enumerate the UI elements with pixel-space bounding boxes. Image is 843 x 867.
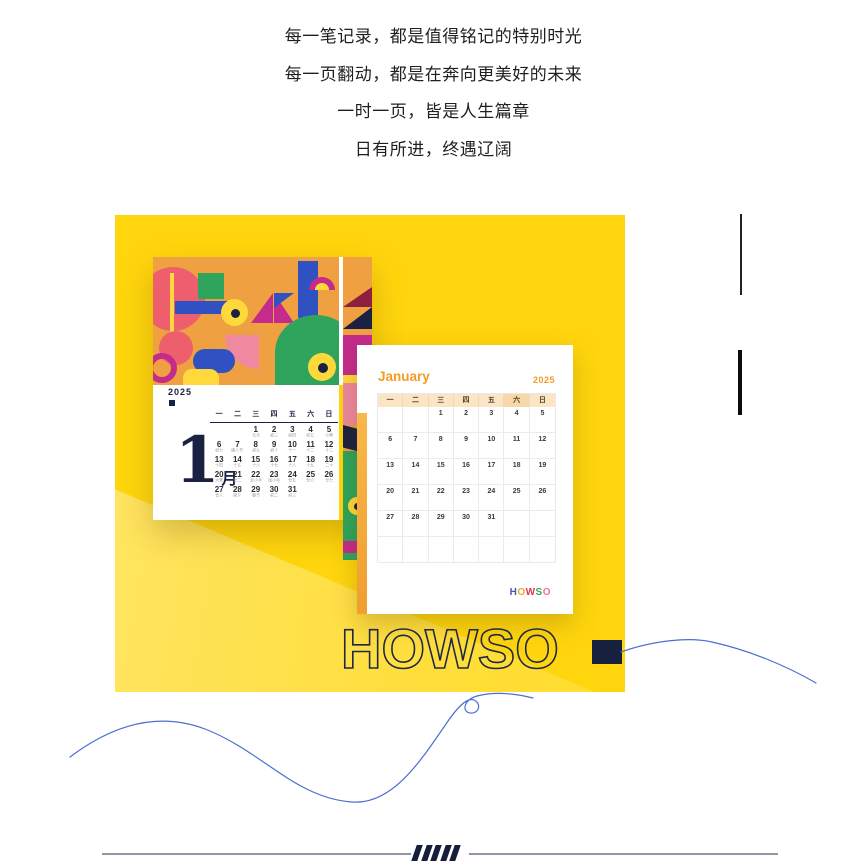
page-calendar-cell: 27 <box>378 511 403 537</box>
page-calendar-cell: 11 <box>504 433 529 459</box>
desk-calendar-cell: 19二十 <box>320 456 338 471</box>
right-vertical-line-thick <box>738 350 742 415</box>
quote-line-2: 每一页翻动，都是在奔向更美好的未来 <box>12 56 843 94</box>
page-calendar-cell <box>504 511 529 537</box>
footer-divider-right <box>469 853 778 855</box>
page-calendar-cell <box>403 407 428 433</box>
page-calendar-cell <box>530 537 555 563</box>
page-weekday-label: 五 <box>479 394 504 407</box>
page-calendar-cell <box>403 537 428 563</box>
desk-calendar-cell: 17十八 <box>283 456 301 471</box>
page-calendar-cell: 5 <box>530 407 555 433</box>
desk-calendar-cell: 27廿八 <box>210 486 228 501</box>
page-calendar-cell: 3 <box>479 407 504 433</box>
page-weekday-label: 三 <box>429 394 454 407</box>
quote-line-3: 一时一页，皆是人生篇章 <box>12 93 843 131</box>
desk-calendar-year: 2025 <box>168 387 192 397</box>
desk-calendar-cell: 8初九 <box>247 441 265 456</box>
page-calendar-cell <box>429 537 454 563</box>
desk-date-grid: 1元旦2初三3初四4初五5小寒6初七7腊八节8初九9初十10十一11十二12十三… <box>210 426 338 501</box>
desk-weekday-label: 五 <box>283 409 301 419</box>
desk-calendar-cell: 31初三 <box>283 486 301 501</box>
desk-calendar-cell: 30初二 <box>265 486 283 501</box>
desk-calendar-cell: 29春节 <box>247 486 265 501</box>
desk-calendar-cell: 18十九 <box>301 456 319 471</box>
desk-calendar-cell: 22北小年 <box>247 471 265 486</box>
page-calendar-cell: 10 <box>479 433 504 459</box>
page-calendar-cell: 15 <box>429 459 454 485</box>
page-weekday-label: 日 <box>530 394 555 407</box>
desk-weekday-label: 四 <box>265 409 283 419</box>
quote-block: 每一笔记录，都是值得铭记的特别时光 每一页翻动，都是在奔向更美好的未来 一时一页… <box>12 18 843 168</box>
page-calendar-cell: 24 <box>479 485 504 511</box>
desk-weekday-label: 一 <box>210 409 228 419</box>
quote-line-4: 日有所进，终遇辽阔 <box>12 131 843 169</box>
page-calendar-cell <box>504 537 529 563</box>
desk-calendar-cell: 11十二 <box>301 441 319 456</box>
desk-calendar-artwork <box>153 257 339 385</box>
desk-weekday-row: 一二三四五六日 <box>210 409 338 423</box>
hero-banner: 2025 1月 一二三四五六日 1元旦2初三3初四4初五5小寒6初七7腊八节8初… <box>115 215 625 692</box>
curve-left <box>70 693 533 802</box>
page-calendar-card: January 2025 一二三四五六日 1234567891011121314… <box>357 345 573 614</box>
desk-calendar-cell: 1元旦 <box>247 426 265 441</box>
page-calendar-cell: 23 <box>454 485 479 511</box>
page-calendar-cell: 31 <box>479 511 504 537</box>
page-calendar-cell: 26 <box>530 485 555 511</box>
howso-outline-text: HOWSO <box>341 619 559 679</box>
howso-logo-letter: W <box>526 587 536 598</box>
desk-calendar-cell: 5小寒 <box>320 426 338 441</box>
page-calendar-cell: 1 <box>429 407 454 433</box>
page-calendar-cell <box>378 407 403 433</box>
desk-calendar-panel: 2025 1月 一二三四五六日 1元旦2初三3初四4初五5小寒6初七7腊八节8初… <box>153 385 339 520</box>
page-calendar-cell <box>479 537 504 563</box>
page-date-grid: 1234567891011121314151617181920212223242… <box>378 407 555 563</box>
page-calendar-cell: 29 <box>429 511 454 537</box>
quote-line-1: 每一笔记录，都是值得铭记的特别时光 <box>12 18 843 56</box>
page-calendar-cell: 4 <box>504 407 529 433</box>
page-calendar-cell: 18 <box>504 459 529 485</box>
page-weekday-label: 一 <box>378 394 403 407</box>
footer-divider-left <box>102 853 411 855</box>
footer-slashes-icon <box>414 845 458 861</box>
desk-calendar-cell <box>228 426 246 441</box>
page-calendar-cell: 14 <box>403 459 428 485</box>
howso-logo-letter: S <box>536 587 543 598</box>
desk-weekday-label: 三 <box>247 409 265 419</box>
page-calendar-cell <box>454 537 479 563</box>
desk-calendar-cell: 26廿七 <box>320 471 338 486</box>
howso-logo-letter: O <box>517 587 525 598</box>
desk-weekday-label: 六 <box>301 409 319 419</box>
howso-navy-block <box>592 640 622 664</box>
desk-calendar-cell: 12十三 <box>320 441 338 456</box>
page-calendar-cell: 2 <box>454 407 479 433</box>
page-weekday-label: 四 <box>454 394 479 407</box>
howso-logo-letter: O <box>543 587 551 598</box>
page-calendar-title: January <box>378 369 430 384</box>
desk-calendar-cell: 16十七 <box>265 456 283 471</box>
page-weekday-label: 六 <box>504 394 529 407</box>
desk-calendar-cell: 21廿二 <box>228 471 246 486</box>
desk-calendar-cell: 10十一 <box>283 441 301 456</box>
desk-calendar-cell <box>210 426 228 441</box>
page-calendar-cell: 12 <box>530 433 555 459</box>
desk-calendar-cell: 14十五 <box>228 456 246 471</box>
page-calendar-cell: 9 <box>454 433 479 459</box>
year-square-mark <box>169 400 175 406</box>
page-calendar-cell: 16 <box>454 459 479 485</box>
desk-calendar-cell: 25廿六 <box>301 471 319 486</box>
page-calendar-cell <box>378 537 403 563</box>
page-calendar-cell: 25 <box>504 485 529 511</box>
desk-weekday-label: 日 <box>320 409 338 419</box>
page-calendar-cell: 20 <box>378 485 403 511</box>
desk-calendar-cell: 13十四 <box>210 456 228 471</box>
howso-logo: HOWSO <box>510 587 551 598</box>
desk-calendar-cell: 7腊八节 <box>228 441 246 456</box>
page-calendar-cell: 7 <box>403 433 428 459</box>
page-calendar-cell: 28 <box>403 511 428 537</box>
page-calendar-spine <box>357 413 367 614</box>
page-calendar-cell: 30 <box>454 511 479 537</box>
desk-calendar-cell: 23南小年 <box>265 471 283 486</box>
desk-calendar-cell: 4初五 <box>301 426 319 441</box>
desk-calendar-cell: 3初四 <box>283 426 301 441</box>
page-calendar-cell: 8 <box>429 433 454 459</box>
desk-calendar-cell: 24廿五 <box>283 471 301 486</box>
page-calendar-cell: 17 <box>479 459 504 485</box>
desk-weekday-label: 二 <box>228 409 246 419</box>
page-calendar-cell: 6 <box>378 433 403 459</box>
desk-calendar-cell: 20大寒 <box>210 471 228 486</box>
page-calendar-year: 2025 <box>533 375 555 385</box>
desk-calendar-cell: 9初十 <box>265 441 283 456</box>
page-calendar-cell <box>530 511 555 537</box>
page-calendar-grid: 一二三四五六日 12345678910111213141516171819202… <box>377 393 556 563</box>
page-weekday-label: 二 <box>403 394 428 407</box>
page-calendar-cell: 21 <box>403 485 428 511</box>
desk-calendar-grid: 一二三四五六日 1元旦2初三3初四4初五5小寒6初七7腊八节8初九9初十10十一… <box>210 409 338 501</box>
page-calendar-cell: 19 <box>530 459 555 485</box>
right-vertical-line-thin <box>740 214 742 295</box>
page-calendar-cell: 13 <box>378 459 403 485</box>
curve-right <box>621 640 816 683</box>
desk-calendar-cell: 15十六 <box>247 456 265 471</box>
page-calendar-cell: 22 <box>429 485 454 511</box>
page-weekday-row: 一二三四五六日 <box>378 394 555 407</box>
desk-calendar-cell: 6初七 <box>210 441 228 456</box>
desk-calendar-cell: 28除夕 <box>228 486 246 501</box>
desk-calendar-cell: 2初三 <box>265 426 283 441</box>
